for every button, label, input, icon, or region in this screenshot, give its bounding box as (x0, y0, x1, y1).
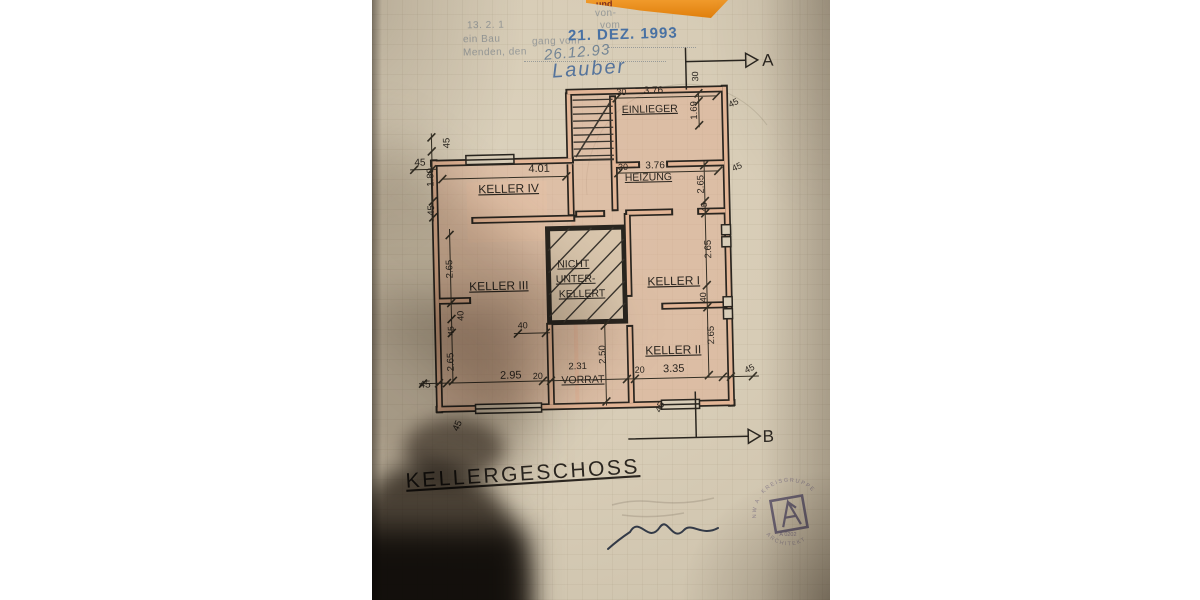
document-photo: von- 13. 2. 1 vom ein Bau gang vom Mende… (372, 0, 830, 600)
no-basement-label: NICHT (557, 258, 590, 271)
dim-label: 45 (441, 138, 452, 149)
dim-label: 30 (616, 87, 626, 97)
dim-label: 40 (455, 311, 465, 321)
room-label: KELLER III (469, 278, 529, 293)
dim-label: 45 (699, 202, 709, 212)
dim-label: 45 (446, 326, 456, 336)
dim-label: 2.65 (444, 260, 455, 279)
section-arrow-a (685, 46, 758, 90)
dim-label: 30 (618, 162, 628, 172)
dim-label: 30 (690, 71, 700, 81)
dim-label: 45 (743, 362, 756, 375)
dim-label: 3.35 (663, 363, 685, 375)
dim-label: 3.76 (644, 85, 664, 96)
dim-label: 45 (451, 419, 465, 433)
dim-label: 2.95 (500, 369, 522, 381)
section-letter: B (762, 427, 774, 446)
dim-label: 2.65 (445, 353, 456, 372)
no-basement-label: KELLERT (559, 287, 606, 300)
dim-label: 45 (730, 160, 743, 173)
section-letter: A (762, 51, 774, 70)
dim-label: 1.69 (689, 101, 700, 120)
dim-label: 20 (635, 365, 645, 375)
screenshot: von- 13. 2. 1 vom ein Bau gang vom Mende… (0, 0, 1200, 600)
pencil-scribble (612, 498, 714, 517)
room-label: HEIZUNG (625, 171, 673, 184)
stamp-code: A 0202 (779, 532, 796, 538)
dim-label: 45 (419, 379, 431, 390)
room-label: VORRAT (561, 374, 605, 387)
plan-group: KELLERGESCHOSSKELLER IVKELLER IIIKELLER … (396, 46, 784, 493)
room-label: KELLER IV (478, 181, 539, 196)
dim-label: 3.76 (645, 160, 665, 171)
no-basement-label: UNTER- (556, 273, 596, 286)
floor-plan-svg: KELLERGESCHOSSKELLER IVKELLER IIIKELLER … (372, 0, 830, 600)
room-label: KELLER II (645, 342, 701, 357)
dim-label: 20 (533, 371, 543, 381)
dim-label: 2.65 (695, 175, 706, 194)
plan-title: KELLERGESCHOSS (405, 455, 641, 493)
architect-stamp: NW A. KREISGRUPPE ARCHITEKT A 0202 (752, 478, 822, 548)
room-label: KELLER I (647, 273, 700, 288)
dim-label: 2.31 (568, 361, 587, 372)
dim-label: 45 (426, 205, 437, 216)
signature (608, 524, 718, 549)
dim-label: 4.01 (528, 163, 550, 175)
dim-label: 2.65 (703, 240, 714, 259)
dim-label: 45 (414, 158, 426, 169)
dim-label: 40 (698, 292, 708, 302)
dim-label: 2.50 (597, 345, 608, 364)
dim-label: 1.80 (425, 168, 436, 187)
stamp-logo (770, 495, 807, 532)
room-label: EINLIEGER (622, 103, 679, 116)
dim-label: 2.65 (706, 326, 717, 345)
dim-label: 40 (518, 320, 528, 330)
